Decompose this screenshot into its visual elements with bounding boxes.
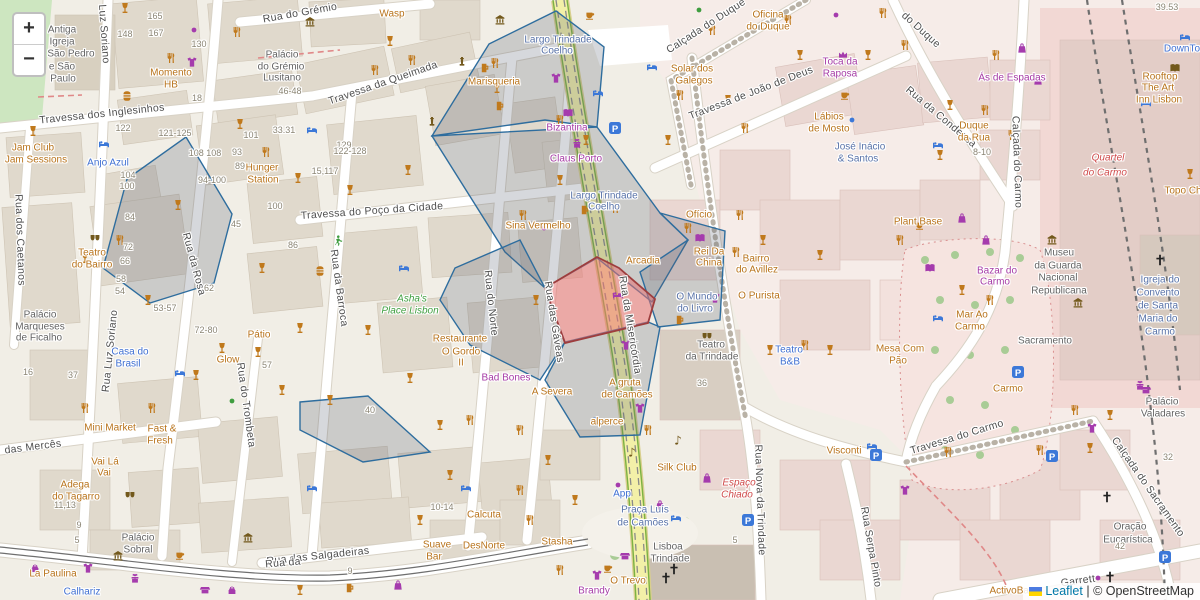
- fork-icon: [677, 90, 684, 100]
- dot-icon: [542, 226, 547, 231]
- bed-icon: [867, 443, 877, 449]
- goblet-icon: [193, 370, 199, 380]
- fork-icon: [1037, 445, 1044, 455]
- dot-icon: [850, 118, 855, 123]
- fork-icon: [467, 415, 474, 425]
- cup-icon: [604, 566, 612, 573]
- awning-icon: [200, 587, 210, 593]
- goblet-icon: [665, 135, 671, 145]
- crown-icon: [839, 52, 847, 58]
- goblet-icon: [237, 119, 243, 129]
- cross-icon: [1103, 492, 1110, 502]
- fork-icon: [897, 235, 904, 245]
- shirt-icon: [593, 570, 602, 579]
- fork-icon: [945, 447, 952, 457]
- goblet-icon: [1107, 410, 1113, 420]
- cross-icon: [1106, 572, 1113, 582]
- goblet-icon: [572, 495, 578, 505]
- masks-icon: [126, 492, 135, 497]
- runner-icon: [335, 235, 342, 245]
- fork-icon: [987, 295, 994, 305]
- goblet-icon: [255, 347, 261, 357]
- ukraine-flag-icon: [1029, 587, 1042, 596]
- parking-icon: [1012, 366, 1024, 379]
- bed-icon: [671, 515, 681, 521]
- cake-icon: [32, 564, 39, 572]
- bed-icon: [399, 265, 409, 271]
- shirt-icon: [84, 563, 93, 572]
- book-icon: [1170, 64, 1179, 72]
- fork-icon: [149, 403, 156, 413]
- fork-icon: [645, 425, 652, 435]
- note-icon: [674, 434, 682, 448]
- bank-icon: [1074, 298, 1083, 308]
- goblet-icon: [122, 3, 128, 13]
- goblet-icon: [407, 373, 413, 383]
- bank-icon: [306, 17, 315, 27]
- burger-icon: [317, 266, 324, 276]
- bed-icon: [307, 485, 317, 491]
- goblet-icon: [387, 36, 393, 46]
- book-icon: [563, 109, 572, 117]
- zoom-in-button[interactable]: +: [14, 14, 44, 45]
- fork-icon: [409, 55, 416, 65]
- bed-icon: [1141, 100, 1151, 106]
- goblet-icon: [405, 165, 411, 175]
- goblet-icon: [865, 50, 871, 60]
- goblet-icon: [447, 470, 453, 480]
- goblet-icon: [279, 385, 285, 395]
- shirt-icon: [188, 57, 197, 66]
- overlay-polygons: [103, 11, 725, 462]
- cup-icon: [176, 553, 184, 560]
- blue-overlay-polygon[interactable]: [300, 396, 430, 462]
- openstreetmap-link[interactable]: © OpenStreetMap: [1093, 584, 1194, 598]
- masks-icon: [703, 333, 712, 338]
- zoom-out-button[interactable]: −: [14, 45, 44, 75]
- shirt-icon: [901, 485, 910, 494]
- bag-icon: [982, 235, 989, 244]
- dot-icon: [230, 399, 235, 404]
- bank-icon: [114, 551, 123, 561]
- dot-icon: [192, 28, 197, 33]
- goblet-icon: [1087, 443, 1093, 453]
- goblet-icon: [1187, 169, 1193, 179]
- bed-icon: [933, 315, 943, 321]
- fork-icon: [902, 40, 909, 50]
- burger-icon: [124, 91, 131, 101]
- bag-icon: [1034, 75, 1041, 84]
- fork-icon: [1009, 130, 1016, 140]
- goblet-icon: [827, 345, 833, 355]
- fork-icon: [1072, 405, 1079, 415]
- fork-icon: [993, 50, 1000, 60]
- parking-icon: [1046, 450, 1058, 463]
- goblet-icon: [365, 325, 371, 335]
- dot-icon: [697, 8, 702, 13]
- bed-icon: [99, 141, 109, 147]
- masks-icon: [91, 235, 100, 240]
- bag-icon: [958, 213, 965, 222]
- bag-icon: [394, 580, 401, 589]
- parking-icon: [870, 449, 882, 462]
- fork-icon: [880, 8, 887, 18]
- bank-icon: [496, 15, 505, 25]
- fork-icon: [742, 123, 749, 133]
- goblet-icon: [297, 585, 303, 595]
- fork-icon: [168, 53, 175, 63]
- fork-icon: [785, 15, 792, 25]
- bed-icon: [1180, 34, 1190, 40]
- fork-icon: [517, 485, 524, 495]
- bag-icon: [703, 473, 710, 482]
- cross-icon: [662, 573, 669, 583]
- fork-icon: [557, 565, 564, 575]
- goblet-icon: [760, 235, 766, 245]
- cup-icon: [841, 93, 849, 100]
- goblet-icon: [937, 150, 943, 160]
- goblet-icon: [219, 343, 225, 353]
- map-canvas[interactable]: ♪ P Rua do GrémioLuz SorianoTravessa dos…: [0, 0, 1200, 600]
- column-icon: [460, 57, 465, 66]
- cross-icon: [1156, 255, 1163, 265]
- goblet-icon: [767, 345, 773, 355]
- fork-icon: [733, 247, 740, 257]
- bed-icon: [175, 370, 185, 376]
- parking-icon: [742, 514, 754, 527]
- goblet-icon: [347, 185, 353, 195]
- goblet-icon: [295, 173, 301, 183]
- goblet-icon: [545, 455, 551, 465]
- bed-icon: [307, 127, 317, 133]
- bed-icon: [461, 485, 471, 491]
- mug-icon: [347, 584, 354, 592]
- dot-icon: [1096, 576, 1101, 581]
- blue-overlay-polygon[interactable]: [103, 137, 232, 303]
- fork-icon: [372, 65, 379, 75]
- goblet-icon: [30, 126, 36, 136]
- attribution-separator: |: [1083, 584, 1093, 598]
- bed-icon: [933, 142, 943, 148]
- awning-icon: [620, 553, 630, 559]
- bed-icon: [647, 64, 657, 70]
- fork-icon: [737, 210, 744, 220]
- cross-icon: [670, 564, 677, 574]
- gift-icon: [132, 574, 139, 583]
- note-icon: [628, 446, 636, 460]
- dot-icon: [834, 13, 839, 18]
- parking-icon: [609, 122, 621, 135]
- goblet-icon: [259, 263, 265, 273]
- book-icon: [695, 234, 704, 242]
- book-icon: [925, 264, 934, 272]
- goblet-icon: [947, 100, 953, 110]
- overlay-svg: ♪ P: [0, 0, 1200, 600]
- fork-icon: [527, 515, 534, 525]
- goblet-icon: [797, 50, 803, 60]
- bank-icon: [244, 533, 253, 543]
- bank-icon: [1048, 235, 1057, 245]
- fork-icon: [263, 147, 270, 157]
- goblet-icon: [417, 515, 423, 525]
- zoom-control: + −: [12, 12, 46, 77]
- cup-icon: [916, 223, 924, 230]
- fork-icon: [802, 340, 809, 350]
- attribution-bar: Leaflet | © OpenStreetMap: [1023, 583, 1200, 600]
- goblet-icon: [817, 250, 823, 260]
- goblet-icon: [82, 253, 88, 263]
- bag-icon: [1018, 43, 1025, 52]
- fork-icon: [234, 27, 241, 37]
- column-icon: [430, 117, 435, 126]
- leaflet-link[interactable]: Leaflet: [1045, 584, 1083, 598]
- fork-icon: [709, 25, 716, 35]
- shirt-icon: [1088, 423, 1097, 432]
- bag-icon: [656, 500, 663, 509]
- cup-icon: [586, 13, 594, 20]
- goblet-icon: [297, 323, 303, 333]
- fork-icon: [982, 105, 989, 115]
- goblet-icon: [959, 285, 965, 295]
- blue-overlay-polygon[interactable]: [432, 11, 604, 136]
- cake-icon: [229, 586, 236, 594]
- goblet-icon: [437, 420, 443, 430]
- parking-icon: [1159, 551, 1171, 564]
- fork-icon: [517, 425, 524, 435]
- goblet-icon: [725, 95, 731, 105]
- fork-icon: [82, 403, 89, 413]
- dot-icon: [616, 483, 621, 488]
- gift-icon: [1137, 381, 1144, 390]
- gift-icon: [574, 139, 581, 148]
